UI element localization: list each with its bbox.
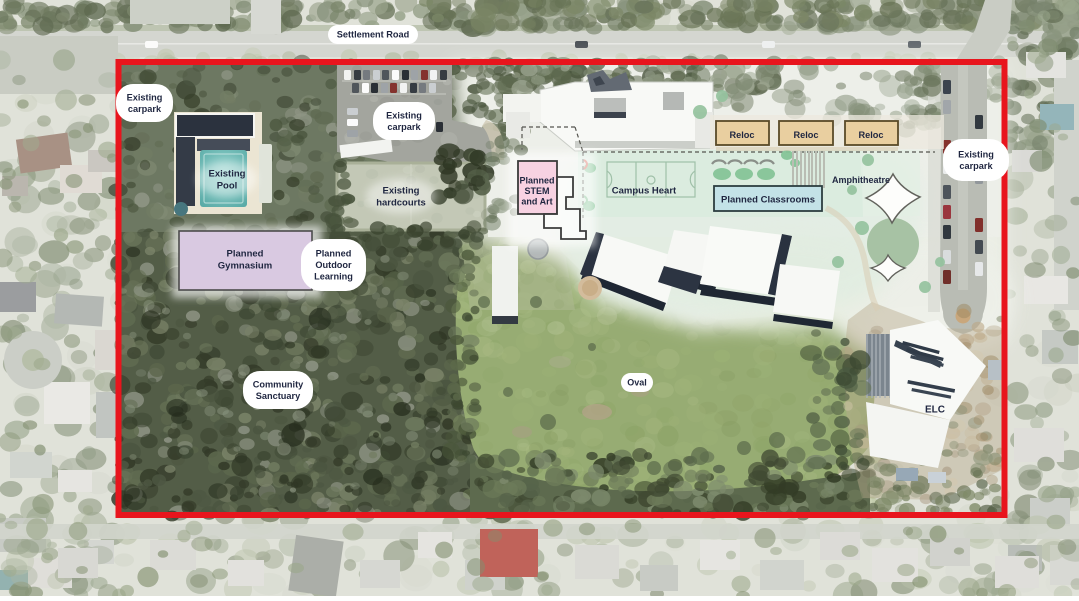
svg-text:Oval: Oval xyxy=(627,378,647,388)
svg-text:Existing: Existing xyxy=(958,150,994,160)
svg-text:Pool: Pool xyxy=(217,180,238,191)
svg-text:Existing: Existing xyxy=(209,168,246,179)
svg-text:STEM: STEM xyxy=(524,186,549,196)
svg-text:Existing: Existing xyxy=(386,111,422,121)
svg-text:Campus Heart: Campus Heart xyxy=(612,185,677,196)
svg-text:Outdoor: Outdoor xyxy=(315,260,352,270)
svg-text:Reloc: Reloc xyxy=(858,130,883,140)
svg-text:Settlement Road: Settlement Road xyxy=(337,30,410,40)
svg-text:hardcourts: hardcourts xyxy=(376,197,426,208)
svg-text:carpark: carpark xyxy=(387,122,421,132)
svg-text:Planned: Planned xyxy=(316,249,352,259)
svg-text:carpark: carpark xyxy=(959,161,993,171)
svg-text:Gymnasium: Gymnasium xyxy=(218,260,272,271)
svg-text:Learning: Learning xyxy=(314,272,353,282)
svg-text:Reloc: Reloc xyxy=(793,130,818,140)
svg-text:Planned: Planned xyxy=(519,176,554,186)
svg-text:Existing: Existing xyxy=(127,93,163,103)
svg-text:Community: Community xyxy=(253,380,304,390)
svg-text:Planned: Planned xyxy=(227,248,264,259)
svg-text:carpark: carpark xyxy=(128,104,162,114)
svg-text:Amphitheatre: Amphitheatre xyxy=(832,175,890,185)
svg-text:Planned Classrooms: Planned Classrooms xyxy=(721,194,815,205)
svg-text:Reloc: Reloc xyxy=(729,130,754,140)
svg-text:Sanctuary: Sanctuary xyxy=(256,391,301,401)
svg-text:ELC: ELC xyxy=(925,405,945,416)
svg-text:and Art: and Art xyxy=(521,197,552,207)
svg-text:Existing: Existing xyxy=(383,185,420,196)
